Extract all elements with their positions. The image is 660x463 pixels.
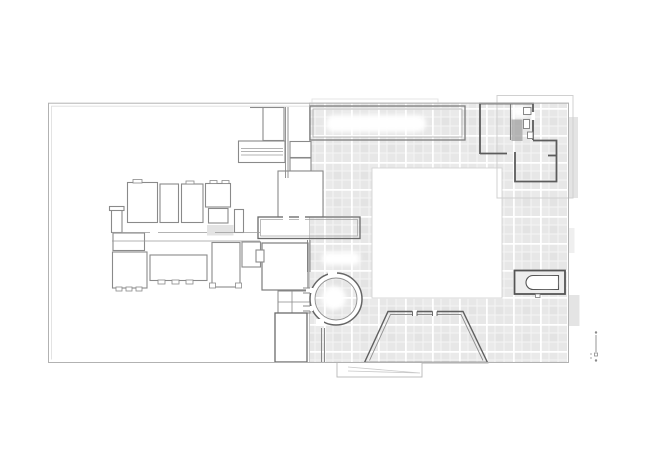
buttress bbox=[186, 280, 193, 284]
buttress bbox=[172, 280, 179, 284]
chimney-nub bbox=[210, 181, 217, 184]
chimney-nub bbox=[133, 180, 142, 184]
chimney-nub bbox=[186, 181, 194, 184]
path-patch bbox=[322, 252, 360, 265]
room bbox=[212, 243, 240, 288]
room bbox=[128, 183, 158, 223]
chimney-nub bbox=[222, 181, 229, 184]
ramp-platform bbox=[337, 363, 422, 378]
site-plan-drawing bbox=[0, 0, 660, 463]
buttress bbox=[158, 280, 165, 284]
path-patch bbox=[322, 286, 346, 310]
fixture bbox=[528, 132, 534, 139]
room bbox=[290, 142, 311, 158]
basin-step bbox=[536, 294, 541, 298]
door-opening bbox=[299, 216, 305, 221]
room bbox=[113, 252, 148, 288]
room bbox=[262, 243, 308, 290]
room bbox=[275, 313, 307, 362]
room bbox=[182, 184, 204, 223]
buttress bbox=[210, 283, 216, 288]
room bbox=[160, 184, 179, 223]
buttress bbox=[116, 287, 122, 291]
buttress bbox=[126, 287, 132, 291]
room bbox=[150, 255, 207, 281]
room bbox=[206, 184, 231, 208]
toilet-fixture bbox=[524, 120, 530, 129]
wing-floor bbox=[259, 218, 309, 238]
door-opening bbox=[328, 270, 337, 276]
central-courtyard bbox=[372, 168, 502, 298]
door-opening bbox=[283, 216, 289, 221]
tower bbox=[112, 208, 123, 233]
hedge-bar bbox=[569, 228, 575, 253]
room bbox=[290, 158, 311, 171]
room bbox=[278, 171, 323, 217]
tower bbox=[235, 210, 244, 233]
shaded-patch bbox=[207, 225, 234, 236]
door-opening bbox=[306, 288, 313, 293]
door-opening bbox=[316, 319, 324, 326]
door-opening bbox=[306, 306, 313, 311]
path-patch bbox=[326, 115, 426, 132]
plan-canvas bbox=[0, 0, 660, 463]
buttress bbox=[136, 287, 142, 291]
hedge-bar bbox=[569, 295, 580, 326]
water-highlight bbox=[535, 278, 557, 287]
step-opening bbox=[413, 310, 418, 316]
marker-dot bbox=[595, 331, 597, 333]
room bbox=[113, 233, 145, 251]
room-annex bbox=[256, 250, 264, 262]
door-opening bbox=[532, 112, 536, 120]
marker-dot bbox=[595, 359, 597, 361]
room bbox=[209, 209, 229, 224]
tiled-court bbox=[310, 103, 580, 363]
buttress bbox=[236, 283, 242, 288]
bath-basin bbox=[515, 271, 566, 298]
sink-fixture bbox=[524, 108, 532, 115]
room bbox=[263, 108, 284, 141]
shower-shading bbox=[512, 120, 523, 142]
step-opening bbox=[433, 310, 438, 316]
tower-cap bbox=[110, 207, 125, 211]
